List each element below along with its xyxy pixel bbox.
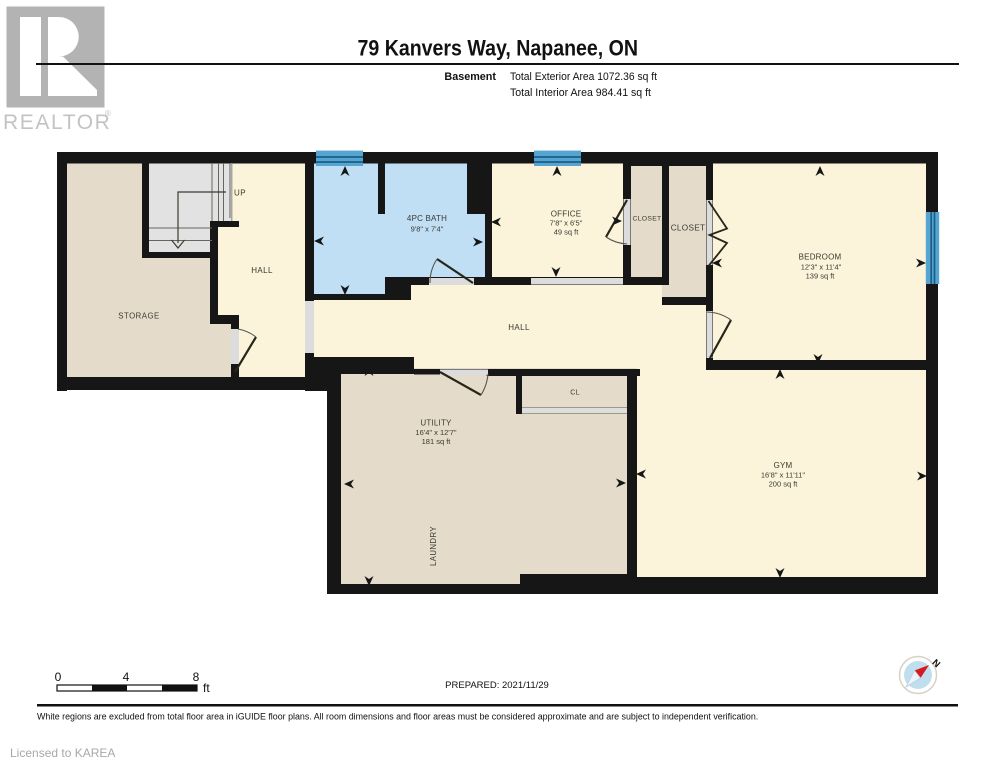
svg-text:Total Interior Area 984.41 sq: Total Interior Area 984.41 sq ft xyxy=(510,87,651,99)
svg-text:4PC BATH: 4PC BATH xyxy=(407,214,447,223)
svg-text:STORAGE: STORAGE xyxy=(118,312,159,321)
svg-text:HALL: HALL xyxy=(508,323,530,332)
svg-text:Basement: Basement xyxy=(444,71,496,83)
svg-text:Total Exterior Area 1072.36 sq: Total Exterior Area 1072.36 sq ft xyxy=(510,71,657,83)
svg-text:CL: CL xyxy=(570,390,580,397)
svg-text:GYM: GYM xyxy=(774,461,793,470)
svg-text:BEDROOM: BEDROOM xyxy=(799,253,842,262)
svg-text:ft: ft xyxy=(203,681,210,695)
svg-text:0: 0 xyxy=(55,670,62,684)
svg-text:REALTOR: REALTOR xyxy=(3,111,111,134)
svg-text:79 Kanvers Way, Napanee, ON: 79 Kanvers Way, Napanee, ON xyxy=(358,35,639,60)
svg-text:CLOSET: CLOSET xyxy=(671,224,706,233)
svg-text:4: 4 xyxy=(123,670,130,684)
svg-text:16'8" x 11'11": 16'8" x 11'11" xyxy=(761,471,806,480)
svg-text:49 sq ft: 49 sq ft xyxy=(554,228,580,237)
svg-text:OFFICE: OFFICE xyxy=(551,210,582,219)
svg-text:White regions are excluded fro: White regions are excluded from total fl… xyxy=(37,712,758,722)
svg-text:UTILITY: UTILITY xyxy=(420,419,452,428)
svg-text:LAUNDRY: LAUNDRY xyxy=(429,526,438,566)
svg-text:181 sq ft: 181 sq ft xyxy=(422,437,452,446)
svg-text:Licensed to KAREA: Licensed to KAREA xyxy=(10,746,115,760)
svg-text:8: 8 xyxy=(193,670,200,684)
svg-text:9'8" x 7'4": 9'8" x 7'4" xyxy=(411,225,444,234)
svg-text:139 sq ft: 139 sq ft xyxy=(806,272,836,281)
svg-text:HALL: HALL xyxy=(251,266,273,275)
svg-text:7'8" x 6'5": 7'8" x 6'5" xyxy=(550,219,583,228)
svg-text:®: ® xyxy=(105,109,111,118)
svg-text:CLOSET: CLOSET xyxy=(633,216,662,223)
svg-text:UP: UP xyxy=(234,189,246,198)
svg-text:12'3" x 11'4": 12'3" x 11'4" xyxy=(801,263,842,272)
svg-text:16'4" x 12'7": 16'4" x 12'7" xyxy=(415,428,456,437)
svg-text:200 sq ft: 200 sq ft xyxy=(769,480,799,489)
svg-text:PREPARED: 2021/11/29: PREPARED: 2021/11/29 xyxy=(445,680,549,691)
